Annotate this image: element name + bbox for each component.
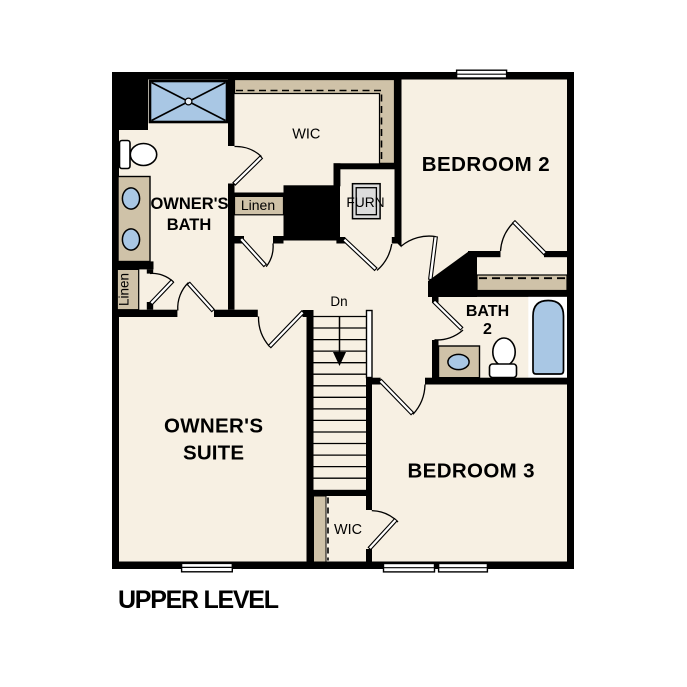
svg-text:2: 2 <box>483 321 492 338</box>
svg-text:WIC: WIC <box>334 522 362 538</box>
svg-text:Dn: Dn <box>330 294 347 309</box>
svg-text:BEDROOM 3: BEDROOM 3 <box>408 460 535 483</box>
svg-text:FURN: FURN <box>346 195 384 210</box>
svg-text:BEDROOM 2: BEDROOM 2 <box>422 153 550 176</box>
svg-text:UPPER LEVEL: UPPER LEVEL <box>118 586 279 614</box>
svg-text:WIC: WIC <box>292 127 320 143</box>
svg-text:BATH: BATH <box>167 216 212 234</box>
svg-text:BATH: BATH <box>466 303 509 320</box>
svg-text:OWNER'S: OWNER'S <box>164 415 263 438</box>
svg-text:Linen: Linen <box>117 273 132 306</box>
svg-text:SUITE: SUITE <box>183 442 244 465</box>
svg-text:Linen: Linen <box>241 197 275 213</box>
svg-text:OWNER'S: OWNER'S <box>151 195 229 213</box>
